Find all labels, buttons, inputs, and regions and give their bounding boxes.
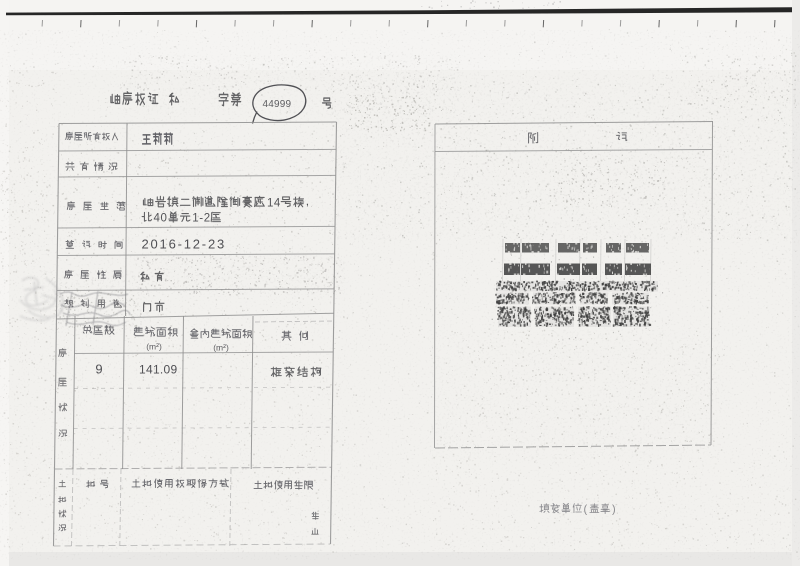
svg-text:(m²): (m²) [213,343,229,353]
svg-text:): ) [612,504,616,516]
svg-text:2016-12-23: 2016-12-23 [142,237,227,252]
svg-text:44999: 44999 [263,99,292,110]
svg-text:(m²): (m²) [146,342,162,352]
svg-text:141.09: 141.09 [139,363,178,377]
svg-text:14: 14 [267,198,281,210]
svg-text:40: 40 [154,213,168,225]
svg-text:1-2: 1-2 [192,213,210,225]
svg-text:,: , [306,194,309,208]
svg-text:(: ( [584,504,588,516]
svg-text:9: 9 [95,362,102,377]
